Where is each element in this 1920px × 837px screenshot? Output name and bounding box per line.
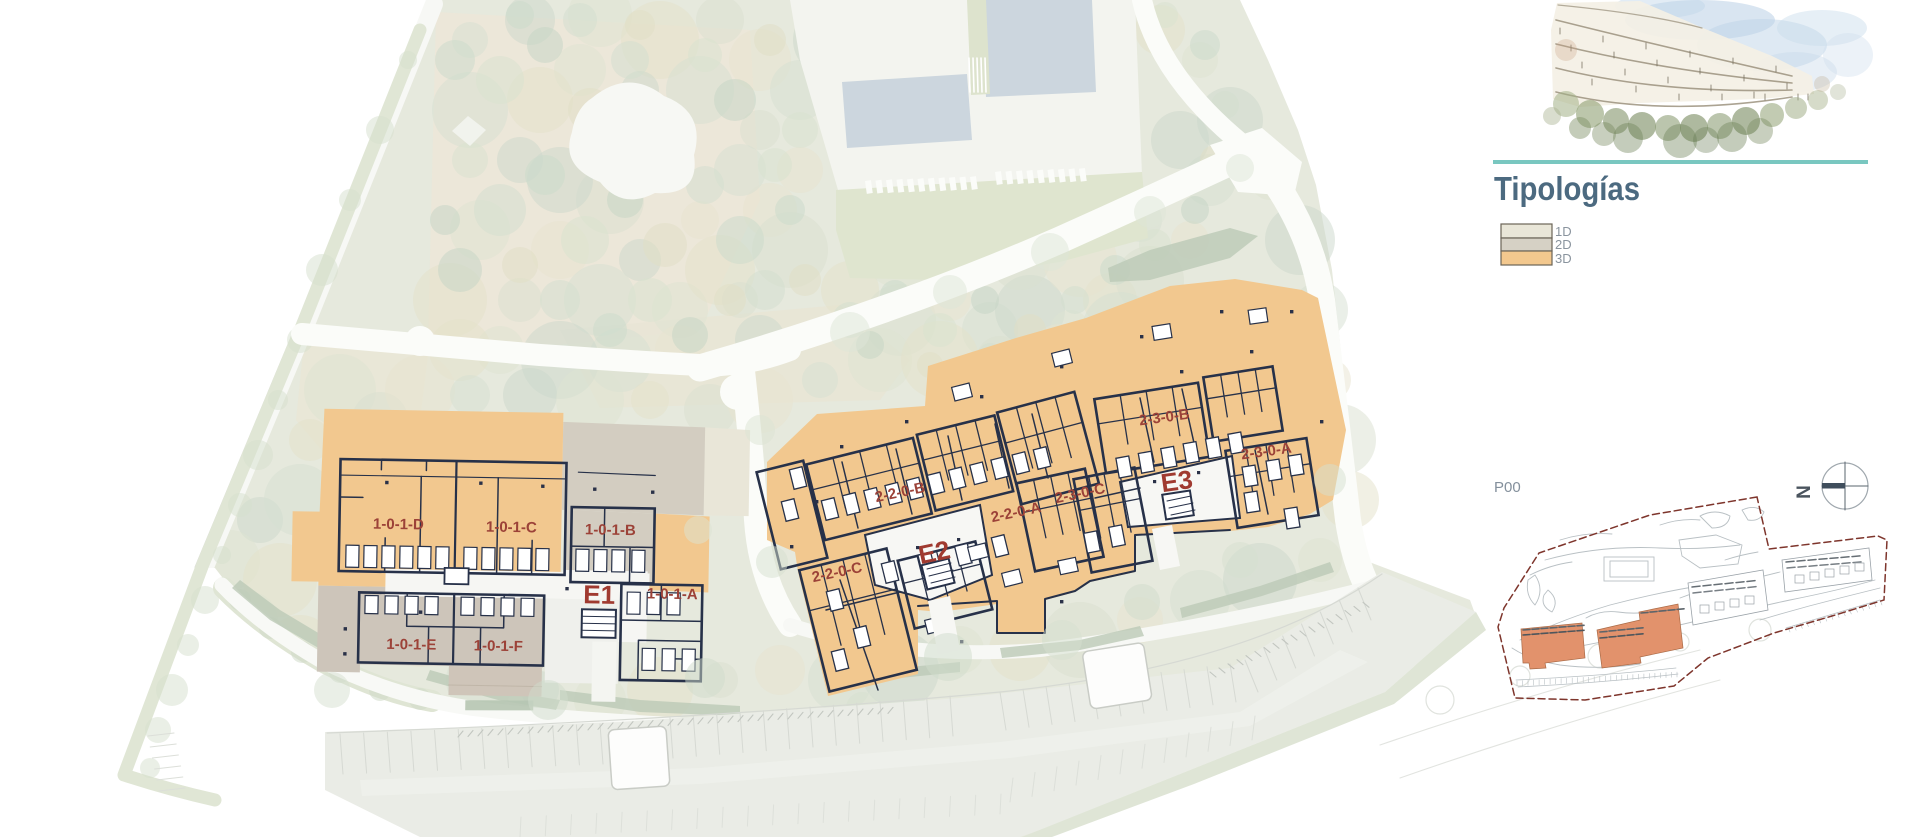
svg-text:1-0-1-B: 1-0-1-B xyxy=(585,521,636,539)
svg-text:3D: 3D xyxy=(1555,251,1572,266)
svg-text:1-0-1-A: 1-0-1-A xyxy=(647,585,698,603)
svg-text:E1: E1 xyxy=(583,579,615,610)
svg-text:Tipologías: Tipologías xyxy=(1494,170,1640,207)
svg-text:E3: E3 xyxy=(1159,464,1195,498)
svg-text:2D: 2D xyxy=(1555,237,1572,252)
svg-text:P00: P00 xyxy=(1494,479,1521,496)
svg-text:1-0-1-C: 1-0-1-C xyxy=(486,519,537,537)
svg-text:1-0-1-F: 1-0-1-F xyxy=(474,637,523,655)
svg-text:1-0-1-E: 1-0-1-E xyxy=(386,636,436,654)
svg-text:N: N xyxy=(1794,485,1815,499)
svg-text:1-0-1-D: 1-0-1-D xyxy=(373,516,424,534)
